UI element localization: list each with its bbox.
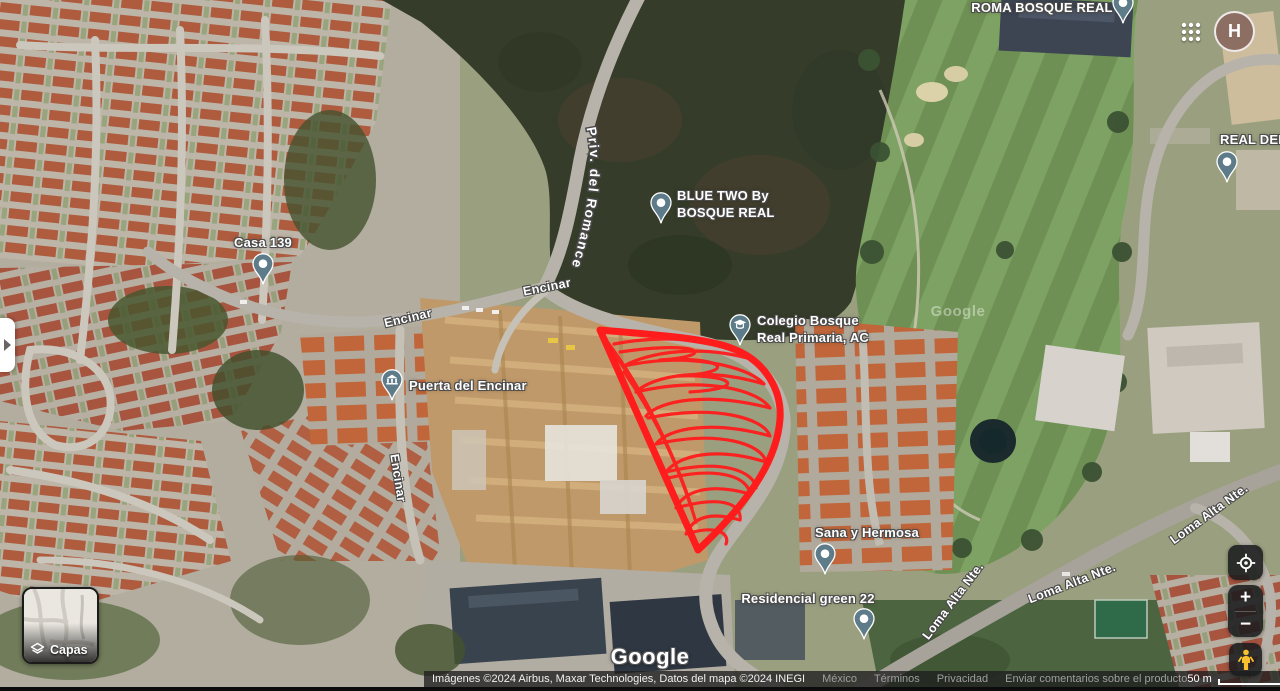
link-privacidad[interactable]: Privacidad [937,673,988,685]
sana-y-hermosa-label[interactable]: Sana y Hermosa [815,525,919,542]
puerta-del-encinar-label[interactable]: Puerta del Encinar [409,378,527,395]
blue-two-by-bosque-real-pin[interactable] [650,192,672,229]
bottom-edge-bar [0,687,1280,691]
google-logo: Google [611,644,690,670]
zoom-out-button[interactable]: − [1228,612,1263,638]
roma-bosque-real-pin[interactable] [1112,0,1134,29]
puerta-del-encinar-pin[interactable] [381,369,403,406]
link-terminos[interactable]: Términos [874,673,920,685]
blue-two-by-bosque-real-label[interactable]: BLUE TWO ByBOSQUE REAL [677,188,775,222]
roma-bosque-real-label[interactable]: ROMA BOSQUE REAL [971,0,1112,17]
apps-grid-icon [1181,22,1201,42]
real-del-label[interactable]: REAL DEL [1220,132,1280,149]
scale-bar [1218,679,1280,685]
my-location-button[interactable] [1228,545,1263,580]
imagery-credits: Imágenes ©2024 Airbus, Maxar Technologie… [432,673,805,685]
link-mexico[interactable]: México [822,673,857,685]
casa-139-pin[interactable] [252,253,274,290]
colegio-bosque-real-primaria-label[interactable]: Colegio BosqueReal Primaria, AC [757,313,869,347]
pegman-button[interactable] [1229,643,1262,676]
layers-icon [30,642,45,657]
residencial-green-22-pin[interactable] [853,608,875,645]
sana-y-hermosa-pin[interactable] [814,543,836,580]
real-del-pin[interactable] [1216,151,1238,188]
google-maps-satellite-view: Priv. del Romance Google ROMA BOSQUE REA… [0,0,1280,691]
pegman-icon [1238,649,1254,671]
residencial-green-22-label[interactable]: Residencial green 22 [741,591,874,608]
chevron-right-icon [4,339,11,351]
side-panel-toggle[interactable] [0,318,15,372]
map-watermark: Google [931,303,986,320]
google-apps-button[interactable] [1180,21,1202,43]
casa-139-label[interactable]: Casa 139 [234,235,292,252]
zoom-control: + − [1228,585,1263,637]
zoom-in-button[interactable]: + [1228,585,1263,611]
layers-button[interactable]: Capas [22,587,99,664]
my-location-icon [1236,553,1256,573]
scale-label: 50 m [1187,673,1211,685]
link-feedback[interactable]: Enviar comentarios sobre el producto [1005,673,1187,685]
account-avatar[interactable]: H [1214,11,1255,52]
colegio-bosque-real-primaria-pin[interactable] [729,314,751,351]
satellite-map-canvas[interactable]: Priv. del Romance [0,0,1280,691]
layers-label: Capas [50,643,88,657]
attribution-bar: Imágenes ©2024 Airbus, Maxar Technologie… [424,671,1280,687]
